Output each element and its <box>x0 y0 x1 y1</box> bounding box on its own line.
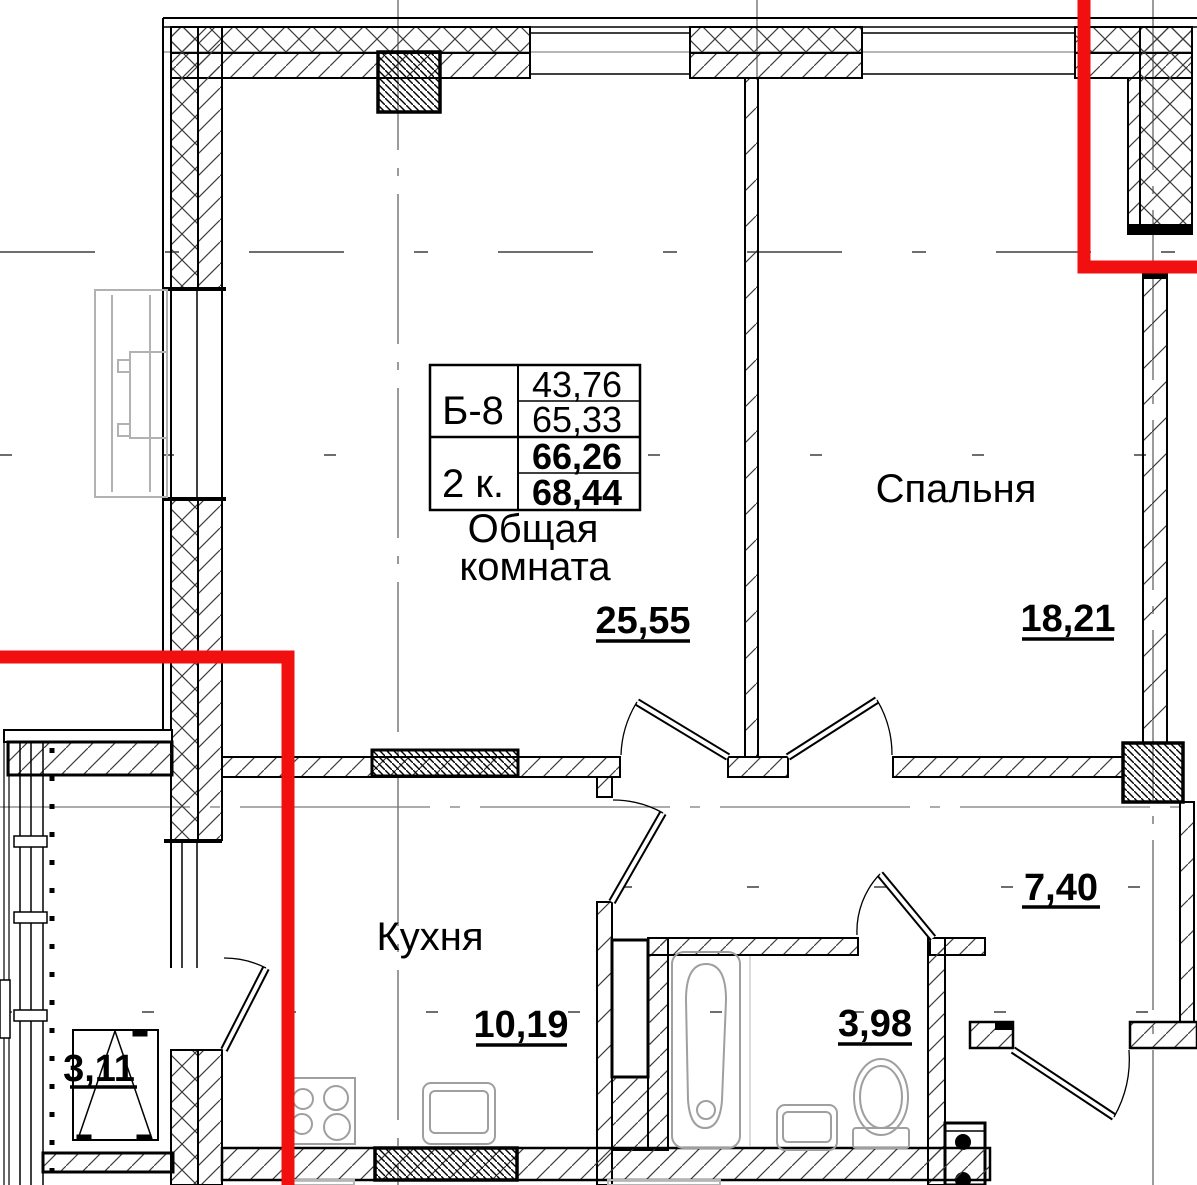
door-swing-arc <box>857 874 880 935</box>
unit-id-label: Б-8 <box>442 389 504 433</box>
entrance-jamb-mark <box>996 1022 1013 1029</box>
door-leaf-core <box>1013 1050 1114 1117</box>
bottom-wall-dense-block <box>375 1148 517 1180</box>
kitchen-sink-basin <box>430 1091 488 1133</box>
bathtub <box>672 952 740 1148</box>
lower-unit-fixture-hint <box>286 1180 354 1185</box>
kitchen-sink <box>423 1083 495 1144</box>
door-balcony <box>224 958 266 1050</box>
neighbor-bay-tab <box>118 424 130 436</box>
unit-type-label: 2 к. <box>442 462 504 506</box>
kitchen-name: Кухня <box>376 915 483 959</box>
wall-segment <box>690 53 862 78</box>
partition-living-bedroom <box>745 78 758 757</box>
area-value-2: 65,33 <box>532 399 622 440</box>
door-swing-arc <box>621 702 637 755</box>
floor-plan-drawing: Б-8 2 к. 43,76 65,33 66,26 68,44 Общая к… <box>0 0 1197 1185</box>
corridor-wall-right <box>893 757 1123 777</box>
toilet <box>853 1059 909 1148</box>
glazing-mullion <box>14 1010 47 1021</box>
wall-segment <box>690 27 862 53</box>
hallway-area: 7,40 <box>1024 867 1098 909</box>
door-swing-arc <box>877 700 892 755</box>
glazing-mullion <box>14 912 47 923</box>
wall-segment <box>171 27 198 288</box>
toilet-bowl-inner <box>860 1066 902 1128</box>
door-swing-arc <box>224 958 266 968</box>
kitchen-right-wall <box>597 902 612 1185</box>
wall-segment <box>171 500 198 840</box>
floor-plan-canvas: Б-8 2 к. 43,76 65,33 66,26 68,44 Общая к… <box>0 0 1197 1185</box>
wall-cap <box>1128 225 1192 234</box>
wall-segment <box>171 27 530 53</box>
bathtub-basin <box>686 964 726 1128</box>
bath-sink <box>777 1105 837 1150</box>
glazing-mullion <box>14 836 47 847</box>
unit-info-table: Б-8 2 к. 43,76 65,33 66,26 68,44 <box>430 364 640 513</box>
kitchen-sink-outline <box>423 1083 495 1144</box>
stove-burner <box>293 1089 313 1109</box>
door-living <box>621 702 728 757</box>
wall-segment <box>171 53 530 78</box>
bathroom-left-wall <box>648 938 668 1150</box>
door-leaf-core <box>788 700 877 757</box>
area-value-3: 66,26 <box>532 436 622 477</box>
balcony-glazing <box>0 742 52 1185</box>
balcony-outer-band <box>4 730 172 742</box>
door-leaf-core <box>880 874 933 938</box>
stove-burner <box>324 1114 350 1140</box>
wall-segment <box>171 1050 198 1185</box>
neighbor-bay-tab <box>118 360 130 372</box>
balcony-symbol-tick <box>137 1135 151 1140</box>
hallway-right-wall <box>1180 802 1194 1022</box>
bath-sink-basin <box>783 1112 831 1142</box>
wall-segment <box>1128 78 1140 232</box>
entrance-wall-stub <box>1130 1022 1197 1048</box>
party-wall <box>1143 278 1167 743</box>
balcony-bottom-sill <box>43 1153 173 1172</box>
door-swing-arc <box>1114 1050 1129 1117</box>
toilet-tank <box>853 1128 909 1148</box>
toilet-bowl <box>854 1059 908 1135</box>
kitchen-duct <box>612 940 648 1077</box>
wall-segment <box>198 27 222 288</box>
bathroom-area: 3,98 <box>838 1003 912 1045</box>
column-top <box>378 52 440 112</box>
wall-segment <box>198 1050 222 1185</box>
glazing-block <box>0 980 10 1038</box>
stove-burner <box>292 1114 312 1134</box>
door-leaf-core <box>224 968 266 1050</box>
balcony-symbol-tick <box>133 1030 147 1036</box>
bathtub-drain <box>697 1101 715 1119</box>
door-kitchen <box>612 800 663 902</box>
stove-burner <box>324 1086 348 1110</box>
kitchen-wall-stub <box>597 777 612 797</box>
neighbor-bay <box>95 290 167 497</box>
living-room-name-2: комната <box>459 545 611 589</box>
door-bedroom <box>788 700 892 757</box>
bedroom-name: Спальня <box>876 467 1037 511</box>
kitchen-area: 10,19 <box>473 1004 568 1046</box>
door-entrance <box>1013 1050 1129 1117</box>
door-bathroom <box>857 874 933 938</box>
bottom-wall <box>222 1148 990 1180</box>
door-leaf-core <box>612 813 663 902</box>
wall-segment <box>198 500 222 840</box>
wall-segment <box>1140 27 1192 232</box>
wall-segment <box>612 1077 648 1150</box>
balcony-top-wall <box>8 742 172 775</box>
living-room-area: 25,55 <box>595 600 690 642</box>
balcony-symbol-tick <box>77 1135 91 1140</box>
column-right <box>1123 743 1183 802</box>
lower-unit-fixture-hint <box>608 1180 720 1185</box>
balcony-area: 3,11 <box>63 1048 135 1090</box>
neighbor-bay-center <box>130 352 167 438</box>
door-leaf-core <box>637 702 728 757</box>
corridor-wall-stub <box>728 757 788 777</box>
wall-duct-block <box>372 750 518 776</box>
bedroom-area: 18,21 <box>1020 598 1115 640</box>
